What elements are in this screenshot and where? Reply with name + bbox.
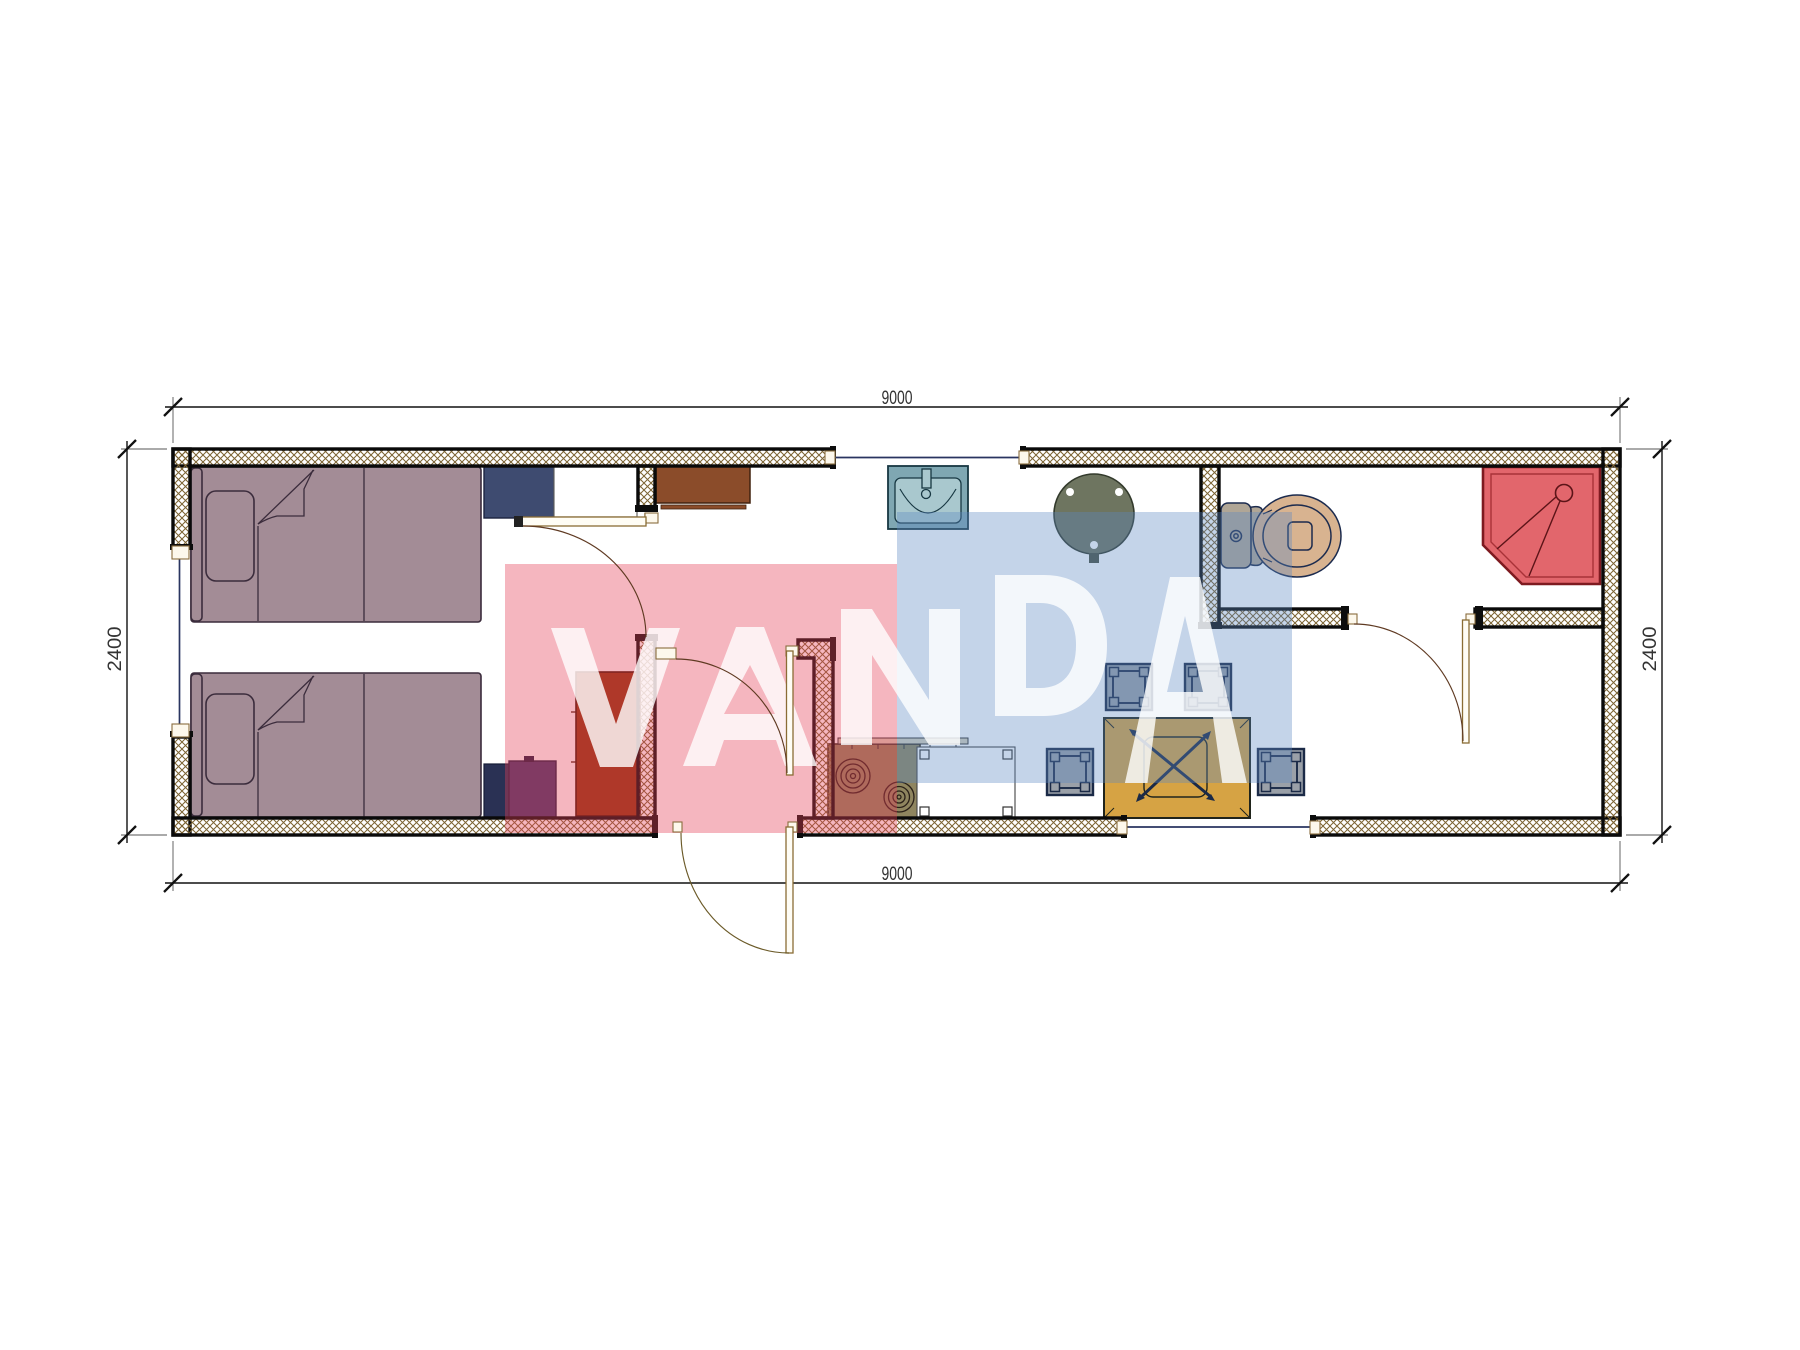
- svg-text:9000: 9000: [882, 864, 913, 885]
- svg-text:2400: 2400: [105, 627, 126, 672]
- svg-text:2400: 2400: [1640, 627, 1661, 672]
- svg-text:9000: 9000: [882, 388, 913, 409]
